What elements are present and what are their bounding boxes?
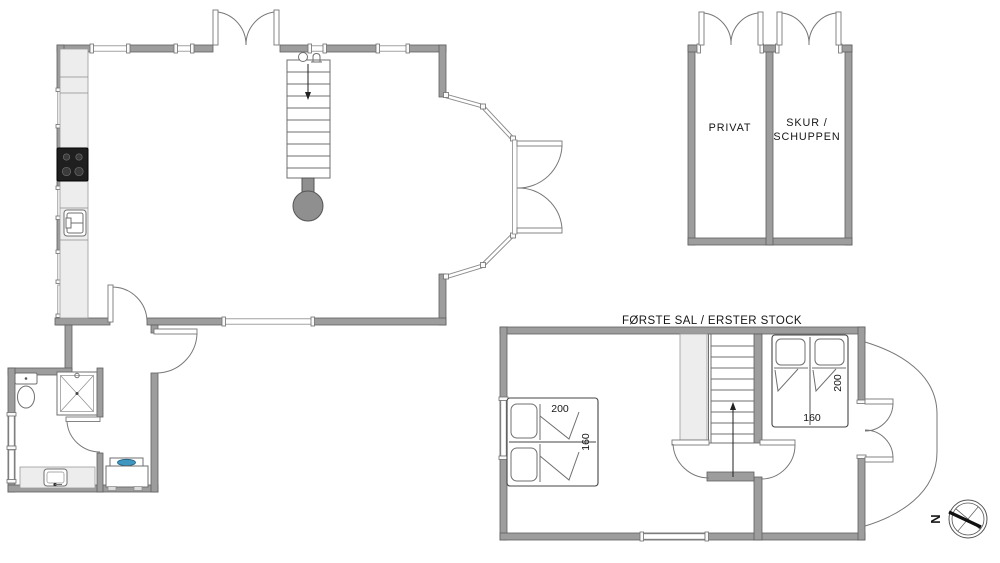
toilet-icon (15, 373, 37, 408)
entry-double-door (213, 10, 279, 45)
shower-icon (57, 372, 97, 415)
window-frame (7, 413, 16, 417)
privat-double-door (699, 12, 763, 45)
window (378, 46, 408, 51)
wall (754, 477, 762, 540)
pillow (511, 404, 537, 438)
interior-door-hall (108, 285, 147, 322)
bed-width-label: 160 (803, 412, 821, 424)
window-frame (640, 532, 644, 541)
window-frame (7, 446, 16, 450)
compass-north-label: N (928, 514, 943, 523)
wall (97, 453, 103, 492)
window-frame (406, 44, 410, 53)
outbuilding-plan: PRIVAT SKUR / SCHUPPEN (688, 12, 852, 245)
window (93, 46, 128, 51)
wall (841, 45, 852, 52)
window-frame (174, 44, 178, 53)
wall (151, 373, 158, 492)
detector-icon (299, 53, 308, 62)
room-label-skur-line1: SKUR / (786, 117, 827, 129)
landing-door-left (672, 440, 709, 478)
window (9, 415, 14, 446)
wall (500, 327, 865, 334)
window (9, 450, 14, 480)
window (501, 400, 506, 456)
wall (55, 318, 110, 325)
window-frame (705, 532, 709, 541)
bed-width-label: 160 (580, 433, 592, 451)
wall (312, 318, 446, 325)
staircase-up (711, 346, 754, 477)
window (643, 534, 705, 539)
staircase-down (287, 60, 330, 178)
pillow (511, 448, 537, 481)
stair-stringer (709, 334, 712, 443)
first-floor-plan: FØRSTE SAL / ERSTER STOCK (499, 315, 937, 541)
wall (325, 45, 378, 52)
wall (128, 45, 176, 52)
wall (858, 458, 865, 540)
window (176, 46, 192, 51)
room-label-skur-line2: SCHUPPEN (773, 131, 840, 143)
wall (65, 325, 72, 370)
bathroom-door (66, 417, 100, 452)
dishwasher-icon (64, 210, 86, 236)
window-frame (222, 317, 226, 326)
window (225, 319, 312, 324)
compass-icon: N (928, 500, 987, 538)
wall (97, 368, 103, 417)
bay-windows (444, 93, 516, 280)
bed-length-label: 200 (551, 403, 569, 415)
wall (707, 472, 754, 481)
window-frame (191, 44, 195, 53)
wall (192, 45, 213, 52)
washing-machine-icon (106, 458, 148, 491)
pillow (815, 339, 844, 365)
window-frame (376, 44, 380, 53)
room-label-privat: PRIVAT (709, 122, 752, 134)
bed-left: 200 160 (507, 398, 598, 486)
balcony-french-doors (865, 399, 893, 462)
skur-double-door (777, 12, 841, 45)
hall-bathroom-plan (7, 325, 197, 492)
kitchen-counter (60, 49, 88, 318)
bed-right: 200 160 (772, 335, 848, 427)
window-frame (90, 44, 94, 53)
bed-length-label: 200 (832, 374, 844, 392)
window-frame (7, 480, 16, 484)
wall (858, 327, 865, 403)
window-frame (311, 317, 315, 326)
wall (766, 45, 773, 245)
bay-french-doors (513, 140, 563, 234)
wall (845, 45, 852, 245)
landing-door-right (760, 440, 795, 479)
wardrobe (680, 334, 707, 440)
window-frame (127, 44, 131, 53)
floor-plan-canvas: PRIVAT SKUR / SCHUPPEN FØRSTE SAL / ERST… (0, 0, 1000, 563)
stove-icon (57, 148, 88, 181)
wall (763, 45, 777, 52)
window-frame (323, 44, 327, 53)
stair-arrow-up (730, 402, 736, 410)
ground-floor-plan (55, 10, 562, 326)
wall (439, 45, 446, 97)
window-frame (308, 44, 312, 53)
wall (147, 318, 225, 325)
entrance-door (154, 329, 197, 373)
wood-stove-icon (293, 178, 323, 221)
bay-outline (865, 342, 937, 526)
wall (754, 334, 762, 443)
wall (280, 45, 310, 52)
wall (439, 274, 446, 325)
wall (688, 45, 695, 245)
sink-icon (20, 467, 95, 488)
pillow (776, 339, 805, 365)
floor-plan-page: PRIVAT SKUR / SCHUPPEN FØRSTE SAL / ERST… (0, 0, 1000, 563)
first-floor-title: FØRSTE SAL / ERSTER STOCK (622, 315, 802, 327)
